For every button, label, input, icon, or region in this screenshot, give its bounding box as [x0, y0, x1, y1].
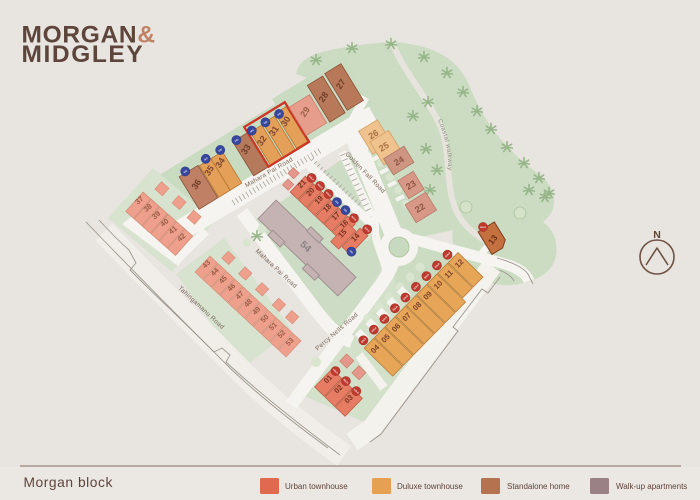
- svg-text:Urban townhouse: Urban townhouse: [285, 482, 348, 491]
- svg-text:MIDGLEY: MIDGLEY: [22, 41, 145, 68]
- svg-text:N: N: [653, 229, 661, 241]
- svg-text:Walk-up apartments: Walk-up apartments: [616, 482, 687, 491]
- svg-text:Duluxe townhouse: Duluxe townhouse: [397, 482, 463, 491]
- svg-text:Morgan block: Morgan block: [24, 475, 113, 490]
- svg-text:Standalone home: Standalone home: [507, 482, 570, 491]
